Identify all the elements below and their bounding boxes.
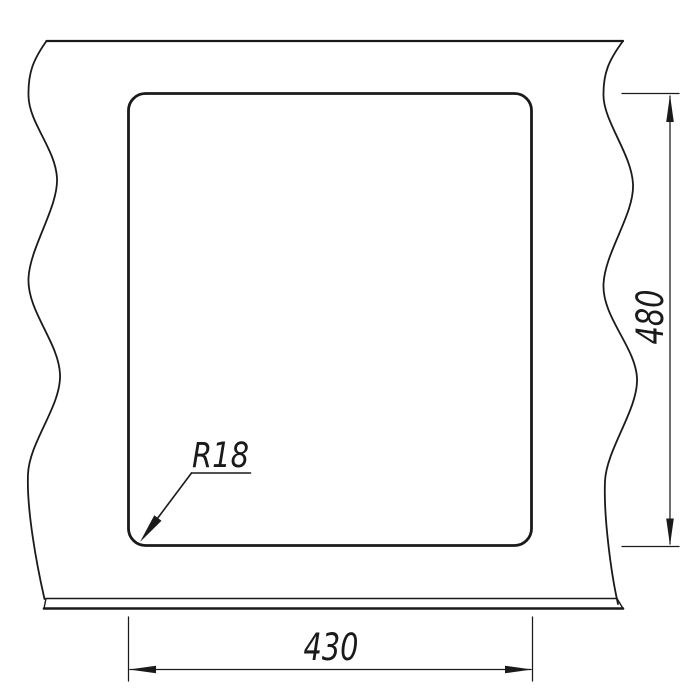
radius-label: R18: [192, 436, 249, 476]
technical-drawing: 480 430 R18: [0, 0, 700, 700]
dimension-height-value: 480: [629, 290, 672, 345]
dimension-height: 480: [622, 94, 679, 547]
front-edge-left-cap: [44, 599, 46, 609]
countertop-front-edge: [44, 599, 623, 609]
radius-callout: R18: [140, 436, 251, 542]
break-line-left: [28, 41, 60, 599]
arrowhead-up-icon: [666, 95, 674, 122]
arrowhead-down-icon: [666, 519, 674, 546]
radius-leader-line: [157, 473, 192, 519]
drawing-canvas: 480 430 R18: [0, 0, 700, 700]
arrowhead-leader-icon: [140, 515, 162, 542]
dimension-width: 430: [129, 617, 533, 681]
drawing-ink: 480 430 R18: [28, 41, 679, 681]
arrowhead-left-icon: [129, 666, 156, 674]
arrowhead-right-icon: [505, 666, 532, 674]
dimension-width-value: 430: [304, 626, 359, 669]
